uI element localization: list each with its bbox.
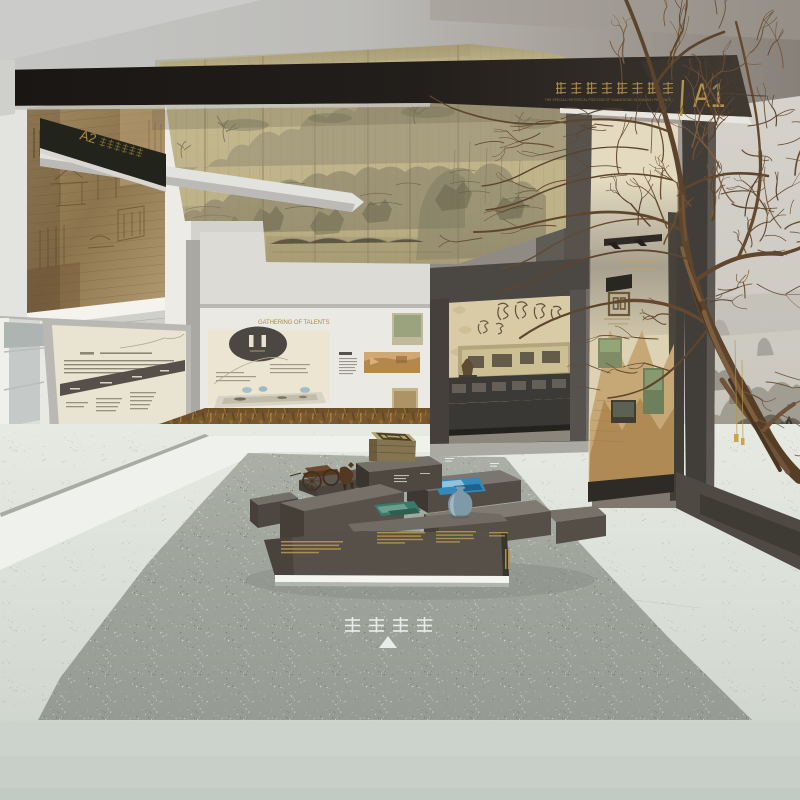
svg-text:GATHERING OF TALENTS: GATHERING OF TALENTS [258,320,329,326]
svg-text:THE SPECIAL HISTORICAL POSITIO: THE SPECIAL HISTORICAL POSITION OF GUANZ… [545,98,671,102]
